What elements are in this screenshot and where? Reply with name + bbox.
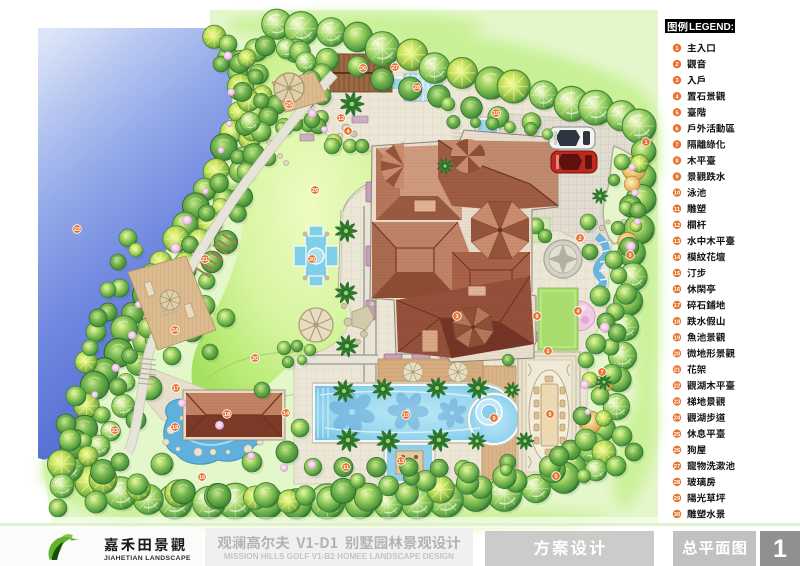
svg-text:30: 30	[309, 257, 315, 263]
svg-text:22: 22	[674, 384, 680, 390]
svg-text:18: 18	[224, 412, 230, 418]
svg-text:24: 24	[172, 328, 179, 334]
svg-text:17: 17	[674, 303, 680, 309]
svg-text:13: 13	[674, 239, 681, 245]
svg-text:6: 6	[548, 412, 551, 418]
svg-text:10: 10	[403, 413, 409, 419]
svg-text:2: 2	[675, 62, 678, 68]
svg-text:14: 14	[283, 411, 290, 417]
svg-text:MISSION HILLS GOLF V1-B2 HOMEE: MISSION HILLS GOLF V1-B2 HOMEE LANDSCAPE…	[224, 552, 454, 561]
svg-text:9: 9	[628, 253, 631, 259]
svg-text:29: 29	[312, 188, 318, 194]
svg-text:18: 18	[674, 319, 681, 325]
svg-text:19: 19	[674, 335, 681, 341]
svg-text:1: 1	[773, 535, 787, 563]
svg-text:20: 20	[252, 356, 258, 362]
svg-text:10: 10	[674, 191, 680, 197]
svg-text:20: 20	[674, 351, 680, 357]
svg-text:13: 13	[398, 459, 404, 465]
svg-text:23: 23	[674, 400, 681, 406]
svg-text:7: 7	[600, 370, 603, 376]
svg-text:9: 9	[492, 416, 495, 422]
svg-text:JIAHETIAN LANDSCAPE: JIAHETIAN LANDSCAPE	[104, 555, 191, 562]
svg-text:27: 27	[674, 464, 680, 470]
svg-text:2: 2	[578, 236, 581, 242]
svg-text:17: 17	[173, 386, 179, 392]
svg-text:5: 5	[554, 474, 557, 480]
svg-text:24: 24	[674, 416, 681, 422]
svg-text:7: 7	[675, 143, 678, 149]
svg-text:19: 19	[172, 425, 178, 431]
svg-text:27: 27	[392, 65, 398, 71]
svg-text:21: 21	[202, 257, 208, 263]
svg-text:15: 15	[674, 271, 681, 277]
svg-text:12: 12	[338, 116, 344, 122]
svg-text:5: 5	[546, 349, 549, 355]
svg-text:LEGEND:: LEGEND:	[689, 22, 734, 33]
svg-text:25: 25	[286, 102, 292, 108]
svg-text:15: 15	[493, 111, 499, 117]
svg-text:25: 25	[674, 432, 681, 438]
svg-text:11: 11	[674, 207, 681, 213]
svg-text:26: 26	[360, 66, 366, 72]
svg-text:28: 28	[674, 480, 681, 486]
svg-text:23: 23	[112, 428, 118, 434]
svg-text:28: 28	[414, 85, 420, 91]
svg-text:1: 1	[644, 140, 647, 146]
svg-text:22: 22	[74, 227, 80, 233]
svg-text:16: 16	[674, 287, 681, 293]
svg-text:11: 11	[343, 465, 349, 471]
svg-text:26: 26	[674, 448, 681, 454]
svg-text:21: 21	[674, 368, 681, 374]
svg-text:3: 3	[455, 314, 458, 320]
svg-text:16: 16	[199, 475, 205, 481]
svg-text:8: 8	[535, 314, 538, 320]
svg-text:12: 12	[674, 223, 680, 229]
svg-text:29: 29	[674, 496, 681, 502]
svg-text:30: 30	[674, 512, 680, 518]
svg-text:14: 14	[674, 255, 681, 261]
